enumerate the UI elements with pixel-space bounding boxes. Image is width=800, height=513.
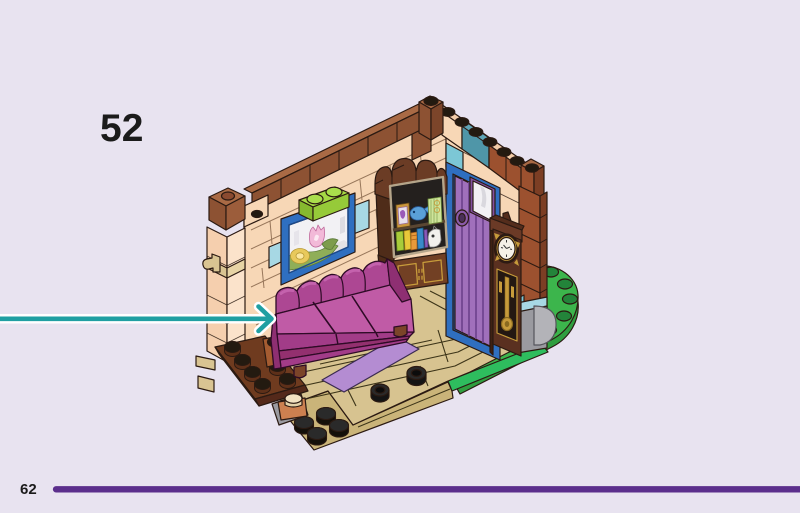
svg-text:62: 62: [20, 481, 37, 498]
svg-text:52: 52: [100, 107, 143, 150]
